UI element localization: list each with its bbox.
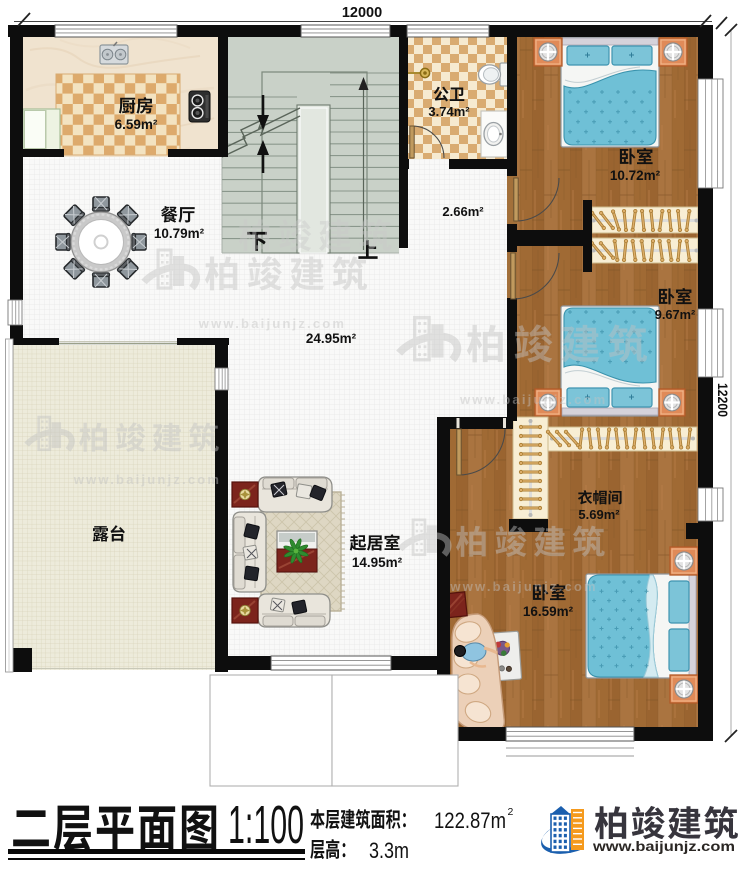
svg-text:10.79m²: 10.79m²	[154, 226, 205, 241]
svg-text:122.87m: 122.87m	[434, 808, 506, 833]
svg-text:5.69m²: 5.69m²	[578, 507, 620, 522]
svg-text:12000: 12000	[342, 5, 382, 21]
svg-text:3.3m: 3.3m	[369, 838, 409, 863]
svg-text:10.72m²: 10.72m²	[610, 168, 661, 183]
svg-text:24.95m²: 24.95m²	[306, 331, 357, 346]
svg-text:3.74m²: 3.74m²	[428, 104, 470, 119]
svg-text:www.baijunjz.com: www.baijunjz.com	[73, 472, 221, 487]
svg-text:16.59m²: 16.59m²	[523, 604, 574, 619]
svg-text:14.95m²: 14.95m²	[352, 555, 403, 570]
svg-text:6.59m²: 6.59m²	[115, 117, 158, 132]
svg-text:2: 2	[508, 806, 514, 818]
svg-text:1:100: 1:100	[228, 795, 304, 855]
svg-text:2.66m²: 2.66m²	[442, 204, 484, 219]
svg-text:www.baijunjz.com: www.baijunjz.com	[592, 838, 735, 854]
svg-text:www.baijunjz.com: www.baijunjz.com	[198, 316, 346, 331]
svg-text:www.baijunjz.com: www.baijunjz.com	[459, 392, 607, 407]
svg-text:12200: 12200	[715, 383, 730, 417]
svg-text:9.67m²: 9.67m²	[655, 307, 696, 322]
svg-text:www.baijunjz.com: www.baijunjz.com	[449, 579, 597, 594]
